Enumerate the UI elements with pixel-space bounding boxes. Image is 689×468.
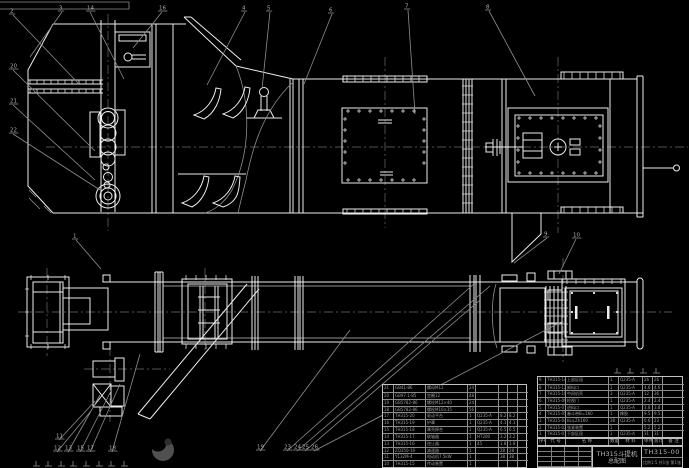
bom-row: 8TH315-12卸料口1Q235-A4.64.6 (538, 384, 684, 391)
drive-unit-glyph (485, 133, 580, 158)
callout-number: 6 (329, 8, 333, 14)
bom-cell: 26 (653, 377, 663, 384)
bom-cell: 序号 (538, 439, 546, 445)
callout-number: 16 (159, 6, 166, 12)
edge-marks-bottom (33, 461, 128, 466)
edge-marks (614, 368, 660, 373)
bolt-ticks (30, 72, 621, 349)
bom-cell: 名 称 (566, 439, 609, 445)
bom-row: 4TH315-05畚斗带B=1601橡胶9.59.5 (538, 410, 684, 417)
elevation-view (28, 17, 680, 262)
bom-cell: 代 号 (546, 439, 566, 445)
callout-number: 14 (87, 6, 94, 12)
callout-number: 17 (87, 446, 94, 452)
bolt-glyph (254, 88, 274, 119)
bom-row: 18GB5782-86螺栓M10×3556 (383, 406, 528, 413)
signature-grid (538, 447, 593, 467)
bom-cell: 1 (538, 431, 546, 437)
bom-row: 12ZQ350-16减速器12828 (383, 447, 528, 454)
callout-number: 2 (10, 9, 14, 15)
bom-cell: 传动装置 (426, 461, 468, 467)
bom-cell: 1 (468, 461, 476, 467)
bom-cell: Q235-A (619, 431, 643, 437)
watermark-logo (150, 435, 175, 462)
bom-row: 5TH315-07进料口1Q235-A3.83.8 (538, 404, 684, 411)
bom-row: 2TH315-02张紧装置15.25.2 (538, 424, 684, 431)
bom-row: 7TH315-10中间机壳3Q235-A1236 (538, 390, 684, 397)
sheet-title: 总配图 (608, 458, 626, 465)
drive-plan (93, 358, 124, 416)
callout-number: 7 (405, 4, 409, 10)
bom-cell: 26 (643, 377, 653, 384)
bom-header-row: 序号代 号名 称数量材 料单件总计备 注 (537, 438, 683, 446)
bom-cell (663, 377, 684, 384)
bom-row: 9TH315-14上部区段1Q235-A2626 (538, 377, 684, 384)
callout-number: 15 (77, 446, 84, 452)
bom-cell (476, 385, 499, 392)
callout-number: 22 (10, 128, 17, 134)
callout-number: 19 (257, 445, 264, 451)
bom-row: 3TH315-04料斗Zh16038Q235-A0.623 (538, 417, 684, 424)
bom-cell (499, 461, 508, 467)
callout-number: 26 (311, 445, 318, 451)
bom-row: 11Y132M-4电动机7.5kW13838 (383, 453, 528, 460)
bom-cell: 24 (468, 385, 476, 392)
drawing-number-cell: TH315-00 比例1:5 共1张 第1张 (642, 447, 682, 467)
centerlines (18, 14, 688, 422)
bom-cell: GB41-86 (394, 385, 426, 392)
bom-cell (476, 461, 499, 467)
bom-cell: 螺母M12 (426, 385, 468, 392)
product-title: TH315斗提机 (597, 450, 638, 458)
title-block: TH315斗提机 总配图 TH315-00 比例1:5 共1张 第1张 (537, 446, 683, 468)
callout-number: 21 (10, 99, 17, 105)
door-plan-right (548, 279, 625, 346)
bom-cell: 总计 (653, 439, 663, 445)
bom-cell (663, 431, 684, 437)
bom-cell (518, 385, 528, 392)
bom-cell: 下部区段 (566, 431, 609, 437)
callout-number: 12 (54, 446, 61, 452)
bom-table-right: 9TH315-14上部区段1Q235-A26268TH315-12卸料口1Q23… (537, 376, 683, 438)
bom-row: 6TH315-09检视门1Q235-A2.42.4 (538, 397, 684, 404)
head-internals (90, 20, 150, 212)
bom-cell: 31 (653, 431, 663, 437)
bom-cell: TH315-14 (546, 377, 566, 384)
title-note: 比例1:5 共1张 第1张 (642, 458, 682, 467)
bom-row: 17TH315-20驱动平台1Q235-A8.28.2 (383, 412, 528, 419)
bom-cell: 单件 (643, 439, 653, 445)
callout-number: 8 (486, 5, 490, 11)
bom-row: 20GB97.1-85垫圈1248 (383, 392, 528, 399)
callout-number: 10 (573, 233, 580, 239)
bom-cell: 材 料 (619, 439, 643, 445)
discharge-chute (512, 213, 541, 262)
viewport-corner (0, 2, 129, 9)
callout-number: 4 (242, 6, 246, 12)
drawing-number: TH315-00 (642, 447, 682, 458)
bom-cell: 备 注 (663, 439, 684, 445)
bom-row: 1TH315-01下部区段1Q235-A3131 (538, 430, 684, 437)
callout-number: 24 (294, 445, 301, 451)
cad-canvas: 2314164567820212219101112131517181923242… (0, 0, 689, 468)
bom-cell: 上部区段 (566, 377, 609, 384)
bom-row: 15TH315-18罩壳焊合1Q235-A6.56.5 (383, 426, 528, 433)
bom-cell: 31 (643, 431, 653, 437)
callout-number: 1 (73, 234, 77, 240)
bom-cell (508, 461, 518, 467)
bom-table-left: 21GB41-86螺母M122420GB97.1-85垫圈124819GB578… (382, 384, 527, 468)
callout-number: 9 (544, 232, 548, 238)
bom-row: 16TH315-19护罩1Q235-A4.14.1 (383, 419, 528, 426)
callout-number: 11 (56, 434, 63, 440)
callout-number: 5 (267, 6, 271, 12)
bom-cell: Q235-A (619, 377, 643, 384)
bom-cell: 1 (609, 431, 619, 437)
bom-cell: TH315-15 (394, 461, 426, 467)
callout-number: 25 (302, 445, 309, 451)
bom-row: 21GB41-86螺母M1224 (383, 385, 528, 392)
bom-cell (518, 461, 528, 467)
bom-row: 序号代 号名 称数量材 料单件总计备 注 (538, 439, 684, 445)
callout-number: 13 (65, 446, 72, 452)
title-cell: TH315斗提机 总配图 (593, 447, 642, 467)
bom-cell (508, 385, 518, 392)
door-handles (378, 120, 393, 175)
bom-row: 14TH315-17联轴器1HT2003.23.2 (383, 433, 528, 440)
bom-cell (499, 385, 508, 392)
bom-cell: 数量 (609, 439, 619, 445)
bom-cell: 1 (609, 377, 619, 384)
callout-number: 3 (59, 6, 63, 12)
bom-cell: 10 (383, 461, 394, 467)
callout-number: 23 (284, 445, 291, 451)
callout-number: 20 (10, 64, 17, 70)
callout-number: 18 (109, 446, 116, 452)
bom-cell: 21 (383, 385, 394, 392)
bom-row: 10TH315-15传动装置1 (383, 460, 528, 467)
belt-curve (205, 66, 247, 213)
bom-row: 13TH315-16逆止器1451.81.8 (383, 440, 528, 447)
bom-cell: TH315-01 (546, 431, 566, 437)
bom-cell: 9 (538, 377, 546, 384)
bom-row: 19GB5782-86螺栓M12×4024 (383, 399, 528, 406)
